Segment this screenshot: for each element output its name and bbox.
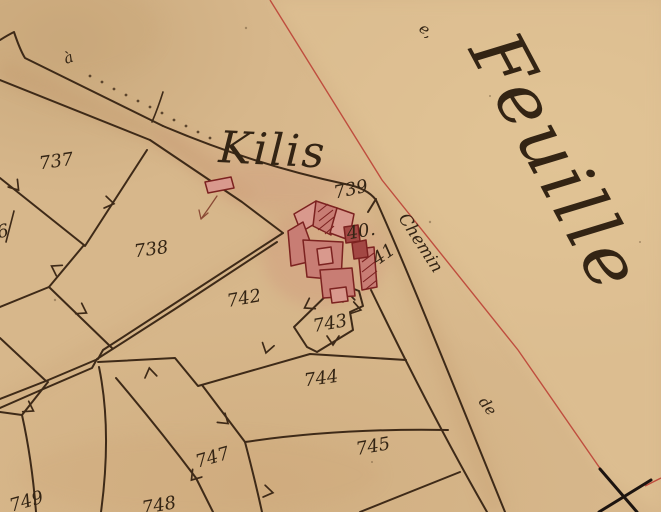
parcel-number-743: 743 (311, 310, 348, 337)
parcel-number-737: 737 (38, 149, 75, 175)
parcel-number-745: 745 (354, 433, 391, 460)
road-name-label-continuation: de (475, 393, 501, 419)
parcel-number-738: 738 (133, 237, 170, 263)
building-reference-arrow (199, 196, 217, 219)
cadastral-map-canvas: Feuille e, Kilis Chemin de à 737 738 739… (0, 0, 661, 512)
place-name-label: Kilis (216, 122, 327, 179)
parcel-number-749: 749 (7, 487, 46, 512)
building (330, 287, 348, 303)
map-drawing: Feuille e, Kilis Chemin de à 737 738 739… (0, 0, 661, 512)
building (317, 247, 333, 265)
parcel-number-742: 742 (225, 285, 262, 312)
parcel-number-744: 744 (303, 366, 340, 392)
